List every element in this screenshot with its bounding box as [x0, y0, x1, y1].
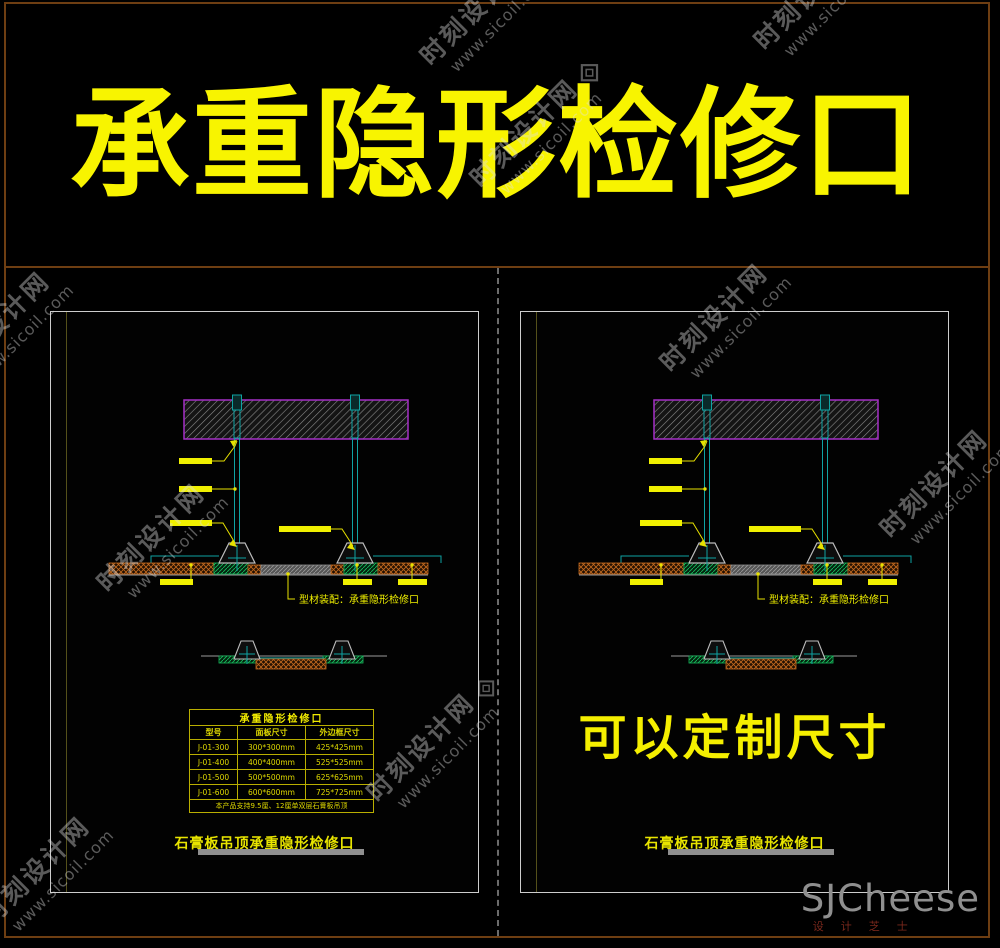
- assembly-callout: 型材装配：承重隐形检修口: [769, 593, 889, 606]
- caption-underline-bar: [198, 849, 364, 855]
- concrete-slab: [184, 400, 408, 439]
- table-row: J-01-300 300*300mm 425*425mm: [190, 740, 374, 755]
- sjcheese-logo: SJCheese 设计芝士: [801, 880, 980, 934]
- panel-door-detail: [201, 641, 387, 669]
- cad-section-drawing: 型材装配：承重隐形检修口: [521, 312, 948, 892]
- spec-col-panel-size: 面板尺寸: [238, 726, 306, 740]
- ceiling-board-assembly: [109, 563, 428, 575]
- spec-table-title: 承重隐形检修口: [190, 710, 374, 726]
- concrete-slab: [654, 400, 878, 439]
- custom-size-text: 可以定制尺寸: [521, 698, 948, 768]
- spec-col-frame-size: 外边框尺寸: [306, 726, 374, 740]
- table-row: J-01-600 600*600mm 725*725mm: [190, 785, 374, 800]
- caption-underline-bar: [668, 849, 834, 855]
- panel-door-detail: [671, 641, 857, 669]
- banner-title: 承重隐形检修口: [70, 47, 924, 221]
- spec-col-model: 型号: [190, 726, 238, 740]
- center-fold-dashed-line: [497, 268, 499, 936]
- spec-table: 承重隐形检修口 型号 面板尺寸 外边框尺寸 J-01-300 300*300mm…: [189, 709, 374, 813]
- furring-channel-right: [843, 556, 911, 563]
- ceiling-board-assembly: [579, 563, 898, 575]
- furring-channel-left: [151, 556, 219, 563]
- furring-channel-right: [373, 556, 441, 563]
- panel-left: 型材装配：承重隐形检修口 承重隐形检修口 型号 面板尺寸 外边框尺寸 J-01-…: [50, 311, 479, 893]
- banner: 承重隐形检修口: [6, 4, 988, 264]
- assembly-callout: 型材装配：承重隐形检修口: [299, 593, 419, 606]
- table-row: J-01-500 500*500mm 625*625mm: [190, 770, 374, 785]
- spec-table-note: 本产品支持9.5厘、12厘单双层石膏板吊顶: [190, 800, 374, 813]
- logo-name: SJCheese: [801, 880, 980, 917]
- panel-right: 型材装配：承重隐形检修口 可以定制尺寸 石膏板吊顶承重隐形检修口: [520, 311, 949, 893]
- logo-subtitle: 设计芝士: [801, 918, 980, 934]
- furring-channel-left: [621, 556, 689, 563]
- table-row: J-01-400 400*400mm 525*525mm: [190, 755, 374, 770]
